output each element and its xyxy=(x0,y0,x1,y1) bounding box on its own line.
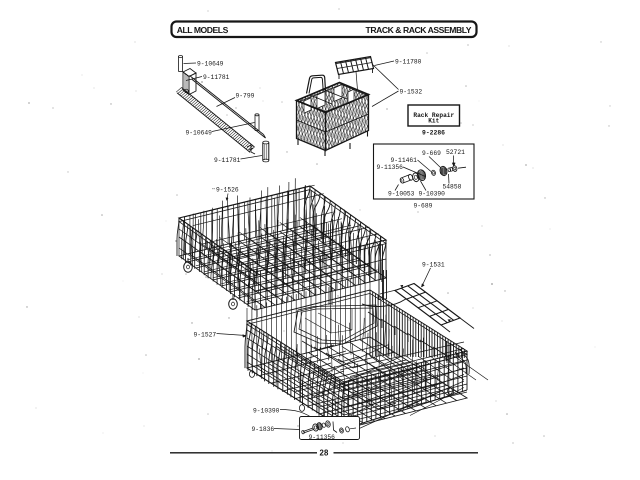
svg-text:9-11461: 9-11461 xyxy=(391,157,418,164)
svg-text:9-669: 9-669 xyxy=(422,150,441,157)
svg-text:9-1836: 9-1836 xyxy=(252,426,275,433)
svg-text:9-10390: 9-10390 xyxy=(253,407,280,414)
svg-text:9-1531: 9-1531 xyxy=(422,262,445,269)
svg-text:9-11781: 9-11781 xyxy=(203,74,230,81)
svg-text:9-10649: 9-10649 xyxy=(186,130,213,137)
svg-text:9-11356: 9-11356 xyxy=(377,164,404,171)
svg-text:ALL MODELS: ALL MODELS xyxy=(177,25,229,35)
svg-text:9-689: 9-689 xyxy=(414,203,433,210)
svg-text:9-10649: 9-10649 xyxy=(197,60,224,67)
svg-text:54858: 54858 xyxy=(443,184,462,191)
svg-text:9-10390: 9-10390 xyxy=(419,191,446,198)
svg-text:9-11356: 9-11356 xyxy=(309,434,336,441)
svg-text:52721: 52721 xyxy=(446,149,465,156)
svg-text:9-1532: 9-1532 xyxy=(400,88,423,95)
svg-text:TRACK & RACK ASSEMBLY: TRACK & RACK ASSEMBLY xyxy=(366,25,472,35)
svg-text:9-1527: 9-1527 xyxy=(194,332,217,339)
svg-text:Kit: Kit xyxy=(428,118,439,125)
svg-text:28: 28 xyxy=(320,449,330,458)
svg-text:9-799: 9-799 xyxy=(236,93,255,100)
svg-text:9-2286: 9-2286 xyxy=(422,130,445,137)
svg-text:9-1526: 9-1526 xyxy=(216,186,239,193)
svg-text:9-10053: 9-10053 xyxy=(388,191,415,198)
svg-text:9-11780: 9-11780 xyxy=(395,58,422,65)
svg-text:9-11781: 9-11781 xyxy=(214,157,241,164)
